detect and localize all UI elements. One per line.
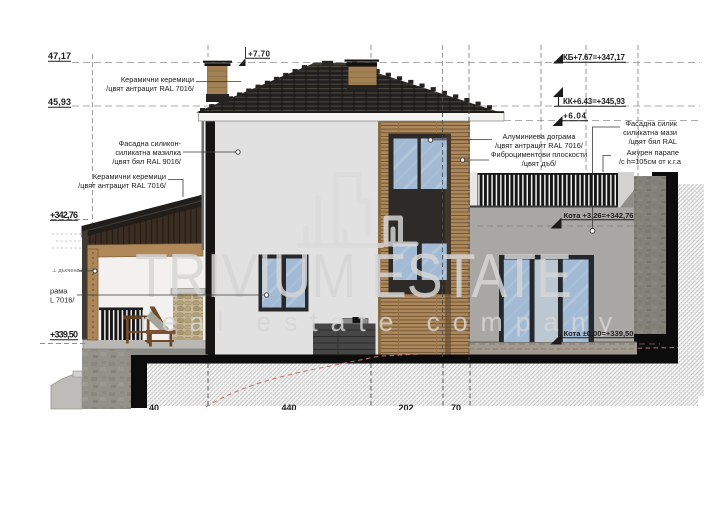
- svg-text:+6.04: +6.04: [563, 112, 587, 121]
- svg-text:Кота ±0,00=+339,50: Кота ±0,00=+339,50: [564, 329, 634, 338]
- svg-text:Кота +3.26=+342,76: Кота +3.26=+342,76: [564, 211, 634, 220]
- svg-text:L 7016/: L 7016/: [50, 296, 75, 305]
- svg-text:real estate company: real estate company: [140, 307, 625, 337]
- svg-text:силикатна мазилка: силикатна мазилка: [115, 148, 182, 157]
- svg-text:КК+6.43=+345,93: КК+6.43=+345,93: [563, 97, 626, 106]
- svg-text:TRIVIUM ESTATE: TRIVIUM ESTATE: [135, 242, 572, 311]
- svg-text:Фиброциментови плоскости: Фиброциментови плоскости: [491, 150, 587, 159]
- svg-text:/цвят бял RAL 9016/: /цвят бял RAL 9016/: [112, 157, 182, 166]
- svg-text:/цвят дъб/: /цвят дъб/: [522, 159, 558, 168]
- svg-text:КБ+7.67=+347,17: КБ+7.67=+347,17: [563, 53, 626, 62]
- svg-text:Керамични керемици: Керамични керемици: [121, 75, 194, 84]
- svg-text:47,17: 47,17: [48, 51, 71, 61]
- svg-text:+7.70: +7.70: [248, 50, 271, 59]
- svg-text:/цвят антрацит RAL 7016/: /цвят антрацит RAL 7016/: [495, 141, 584, 150]
- svg-text:Фасадна силикон-: Фасадна силикон-: [119, 139, 182, 148]
- svg-text:рама: рама: [50, 287, 68, 296]
- svg-text:Фасадна силик: Фасадна силик: [625, 119, 677, 128]
- svg-text:/цвят бял RAL: /цвят бял RAL: [629, 137, 677, 146]
- svg-text:/с h=105см от к.г.а: /с h=105см от к.г.а: [619, 157, 682, 166]
- svg-text:+342,76: +342,76: [50, 210, 78, 220]
- svg-text:Ажурен парапе: Ажурен парапе: [627, 148, 679, 157]
- svg-text:+339,50: +339,50: [50, 330, 78, 340]
- svg-text:/цвят антрацит RAL 7016/: /цвят антрацит RAL 7016/: [78, 181, 167, 190]
- svg-text:Керамични керемици: Керамични керемици: [93, 172, 166, 181]
- svg-text:Алуминиева дограма: Алуминиева дограма: [503, 132, 577, 141]
- svg-text:45,93: 45,93: [48, 97, 71, 107]
- svg-text:/цвят антрацит RAL 7016/: /цвят антрацит RAL 7016/: [106, 84, 195, 93]
- svg-text:силикатна мази: силикатна мази: [623, 128, 677, 137]
